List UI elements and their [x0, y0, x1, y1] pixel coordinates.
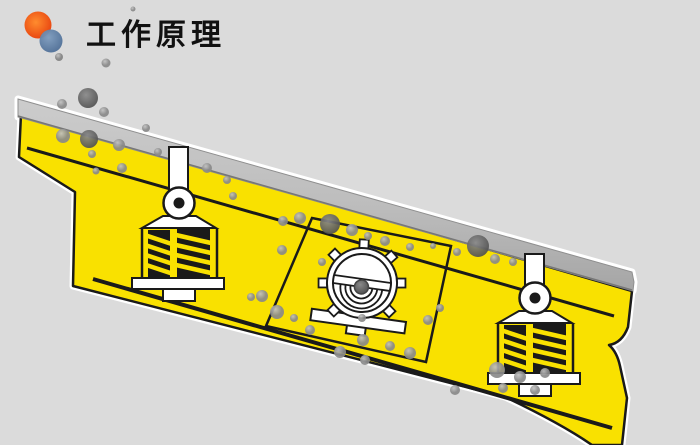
- rock-particle: [131, 7, 136, 12]
- rock-particle: [80, 130, 98, 148]
- rock-particle: [247, 293, 255, 301]
- rock-particle: [406, 243, 414, 251]
- rock-particle: [450, 385, 460, 395]
- rock-particle: [202, 163, 212, 173]
- rock-particle: [223, 176, 231, 184]
- rock-particle: [540, 368, 550, 378]
- logo-gray-dot: [55, 53, 63, 61]
- rock-particle: [498, 383, 508, 393]
- rock-particle: [113, 139, 125, 151]
- rock-particle: [380, 236, 390, 246]
- rock-particle: [294, 212, 306, 224]
- rock-particle: [270, 305, 284, 319]
- rock-particle: [514, 371, 526, 383]
- rock-particle: [290, 314, 298, 322]
- rock-particle: [277, 245, 287, 255]
- rock-particle: [117, 163, 127, 173]
- rock-particle: [360, 355, 370, 365]
- rock-particle: [334, 346, 346, 358]
- rock-particle: [320, 214, 340, 234]
- rock-particle: [318, 258, 326, 266]
- rock-particle: [436, 304, 444, 312]
- logo-blue-circle: [40, 30, 63, 53]
- rock-particle: [364, 232, 372, 240]
- rock-particle: [305, 325, 315, 335]
- rock-particle: [467, 235, 489, 257]
- rock-particle: [358, 314, 366, 322]
- site-logo: [25, 12, 64, 62]
- damper-base-plate: [132, 278, 224, 289]
- rock-particle: [57, 99, 67, 109]
- working-principle-diagram: [0, 0, 700, 445]
- rock-particle: [423, 315, 433, 325]
- rock-particle: [102, 59, 111, 68]
- rock-particle: [530, 385, 540, 395]
- working-principle-page: 工作原理: [0, 0, 700, 445]
- rock-particle: [453, 248, 461, 256]
- rock-particle: [404, 347, 416, 359]
- rock-particle: [256, 290, 268, 302]
- rock-particle: [142, 124, 150, 132]
- rock-particle: [489, 362, 505, 378]
- damper-stem: [163, 289, 195, 301]
- rock-particle: [385, 341, 395, 351]
- pivot-pin: [174, 198, 185, 209]
- rock-particle: [509, 258, 517, 266]
- support-arm: [169, 147, 188, 190]
- rock-particle: [346, 224, 358, 236]
- rock-particle: [357, 334, 369, 346]
- rock-particle: [430, 243, 436, 249]
- rock-particle: [490, 254, 500, 264]
- rock-particle: [229, 192, 237, 200]
- rock-particle: [154, 148, 162, 156]
- pivot-pin: [530, 293, 541, 304]
- vibrating-screen-machine: [18, 7, 634, 445]
- rock-particle: [93, 168, 100, 175]
- support-arm: [525, 254, 544, 285]
- rock-particle: [278, 216, 288, 226]
- rock-particle: [99, 107, 109, 117]
- rock-particle: [78, 88, 98, 108]
- rock-particle: [56, 129, 70, 143]
- rock-particle: [88, 150, 96, 158]
